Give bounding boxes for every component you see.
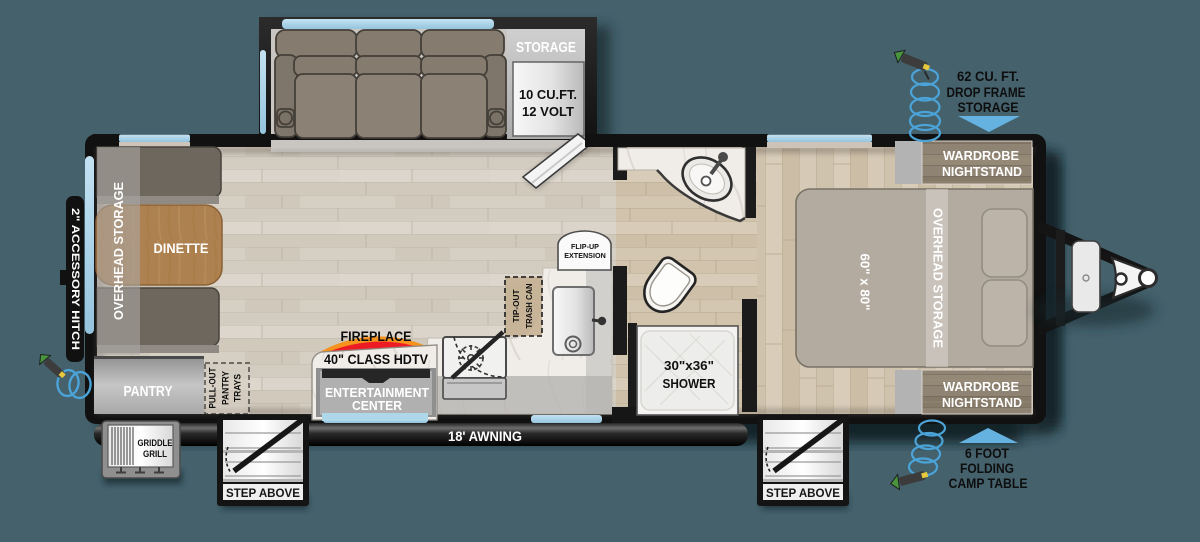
svg-text:OVERHEAD STORAGE: OVERHEAD STORAGE <box>931 208 945 348</box>
svg-text:FLIP-UP: FLIP-UP <box>571 242 599 251</box>
svg-text:CAMP TABLE: CAMP TABLE <box>949 476 1028 491</box>
svg-text:GRIDDLE: GRIDDLE <box>138 438 173 448</box>
svg-text:CENTER: CENTER <box>352 399 402 413</box>
svg-text:TRAYS: TRAYS <box>232 374 242 402</box>
svg-text:6 FOOT: 6 FOOT <box>965 446 1010 461</box>
svg-text:2" ACCESSORY HITCH: 2" ACCESSORY HITCH <box>69 208 81 350</box>
svg-text:NIGHTSTAND: NIGHTSTAND <box>942 164 1022 179</box>
svg-text:OVERHEAD STORAGE: OVERHEAD STORAGE <box>111 182 126 320</box>
svg-text:40" CLASS HDTV: 40" CLASS HDTV <box>324 352 428 367</box>
svg-text:60" x 80": 60" x 80" <box>858 254 873 311</box>
svg-text:STEP ABOVE: STEP ABOVE <box>226 488 300 500</box>
svg-text:NIGHTSTAND: NIGHTSTAND <box>942 395 1022 410</box>
svg-text:PULL-OUT: PULL-OUT <box>207 367 217 408</box>
svg-text:TIP-OUT: TIP-OUT <box>512 289 521 322</box>
svg-text:ENTERTAINMENT: ENTERTAINMENT <box>325 386 429 400</box>
svg-text:10 CU.FT.: 10 CU.FT. <box>519 88 577 102</box>
svg-text:DROP FRAME: DROP FRAME <box>947 85 1026 100</box>
svg-text:30"x36": 30"x36" <box>664 358 714 373</box>
svg-text:SHOWER: SHOWER <box>663 376 717 391</box>
svg-text:PANTRY: PANTRY <box>220 371 230 405</box>
svg-text:STORAGE: STORAGE <box>516 40 576 56</box>
svg-text:FOLDING: FOLDING <box>960 461 1014 476</box>
svg-text:WARDROBE: WARDROBE <box>943 379 1019 394</box>
svg-text:12 VOLT: 12 VOLT <box>522 105 574 119</box>
svg-text:WARDROBE: WARDROBE <box>943 148 1019 163</box>
svg-text:TRASH CAN: TRASH CAN <box>525 283 534 328</box>
svg-text:STORAGE: STORAGE <box>958 100 1019 115</box>
svg-text:DINETTE: DINETTE <box>154 241 209 256</box>
svg-text:62 CU. FT.: 62 CU. FT. <box>957 69 1019 84</box>
svg-text:GRILL: GRILL <box>143 449 167 459</box>
svg-text:18' AWNING: 18' AWNING <box>448 429 522 444</box>
svg-text:EXTENSION: EXTENSION <box>564 251 606 260</box>
svg-text:FIREPLACE: FIREPLACE <box>341 329 412 344</box>
svg-text:PANTRY: PANTRY <box>124 384 173 400</box>
svg-text:STEP ABOVE: STEP ABOVE <box>766 488 840 500</box>
